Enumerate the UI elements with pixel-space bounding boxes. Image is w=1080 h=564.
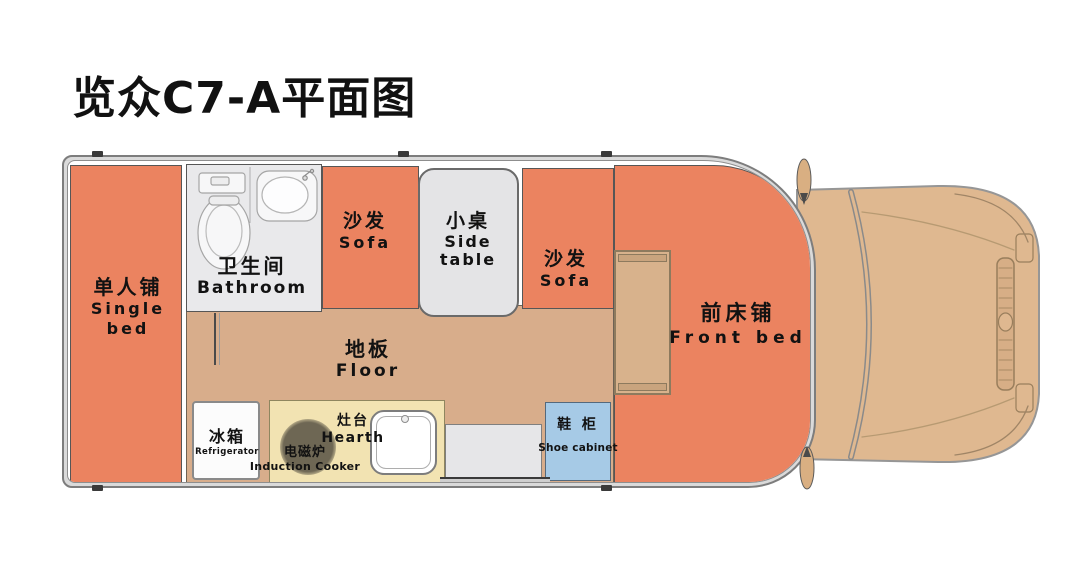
inset-table-rim — [618, 383, 667, 391]
side-table-label-zh: 小桌 — [427, 209, 509, 233]
sink-icon — [257, 169, 317, 221]
single-bed-label: 单人铺 Single bed — [80, 275, 176, 339]
induction-cooker-label-zh: 电磁炉 — [250, 445, 360, 460]
floor-label-en: Floor — [336, 361, 400, 382]
side-table-label: 小桌 Side table — [427, 209, 509, 269]
bathroom-label: 卫生间 Bathroom — [197, 254, 307, 299]
wall-joint-mark — [92, 485, 103, 491]
coach-body-wall: 单人铺 Single bed 卫生间 Bathroom 沙发 Sofa 小桌 S… — [62, 155, 816, 488]
wall-joint-mark — [398, 151, 409, 157]
wall-joint-mark — [601, 485, 612, 491]
sofa-right-label-zh: 沙发 — [540, 247, 592, 271]
hearth-label: 灶台 Hearth — [321, 413, 384, 447]
bathroom-label-zh: 卫生间 — [197, 254, 307, 278]
sofa-left-label: 沙发 Sofa — [339, 209, 391, 253]
bathroom-label-en: Bathroom — [197, 278, 307, 299]
front-bed-label-en: Front bed — [669, 326, 807, 350]
shoe-cabinet-label: 鞋 柜 Shoe cabinet — [538, 417, 617, 455]
floor-plan-canvas: 览众C7-A平面图 — [0, 0, 1080, 564]
wall-joint-mark — [92, 151, 103, 157]
side-table-label-en: Side table — [427, 233, 509, 269]
front-bed-inset-table — [614, 250, 671, 395]
entry-step-rail — [440, 477, 550, 483]
single-bed-label-zh: 单人铺 — [80, 275, 176, 299]
bathroom-door-line — [214, 313, 220, 365]
region-entry-step — [445, 424, 542, 481]
induction-cooker-label: 电磁炉 Induction Cooker — [250, 445, 360, 473]
shoe-cabinet-label-en: Shoe cabinet — [538, 442, 617, 455]
sofa-left-label-en: Sofa — [339, 233, 391, 253]
front-grille-icon — [997, 258, 1014, 390]
front-bed-label-zh: 前床铺 — [669, 300, 807, 326]
single-bed-label-en: Single bed — [80, 299, 176, 339]
floor-label: 地板 Floor — [336, 337, 400, 382]
sofa-left-label-zh: 沙发 — [339, 209, 391, 233]
sofa-right-label-en: Sofa — [540, 271, 592, 291]
refrigerator-label-zh: 冰箱 — [195, 427, 259, 446]
floor-label-zh: 地板 — [336, 337, 400, 361]
coach-interior: 单人铺 Single bed 卫生间 Bathroom 沙发 Sofa 小桌 S… — [67, 160, 811, 483]
shoe-cabinet-label-zh: 鞋 柜 — [538, 417, 617, 434]
induction-cooker-label-en: Induction Cooker — [250, 460, 360, 473]
sofa-right-label: 沙发 Sofa — [540, 247, 592, 291]
hearth-label-zh: 灶台 — [321, 413, 384, 430]
wall-joint-mark — [601, 151, 612, 157]
inset-table-rim — [618, 254, 667, 262]
front-bed-label: 前床铺 Front bed — [669, 300, 807, 350]
